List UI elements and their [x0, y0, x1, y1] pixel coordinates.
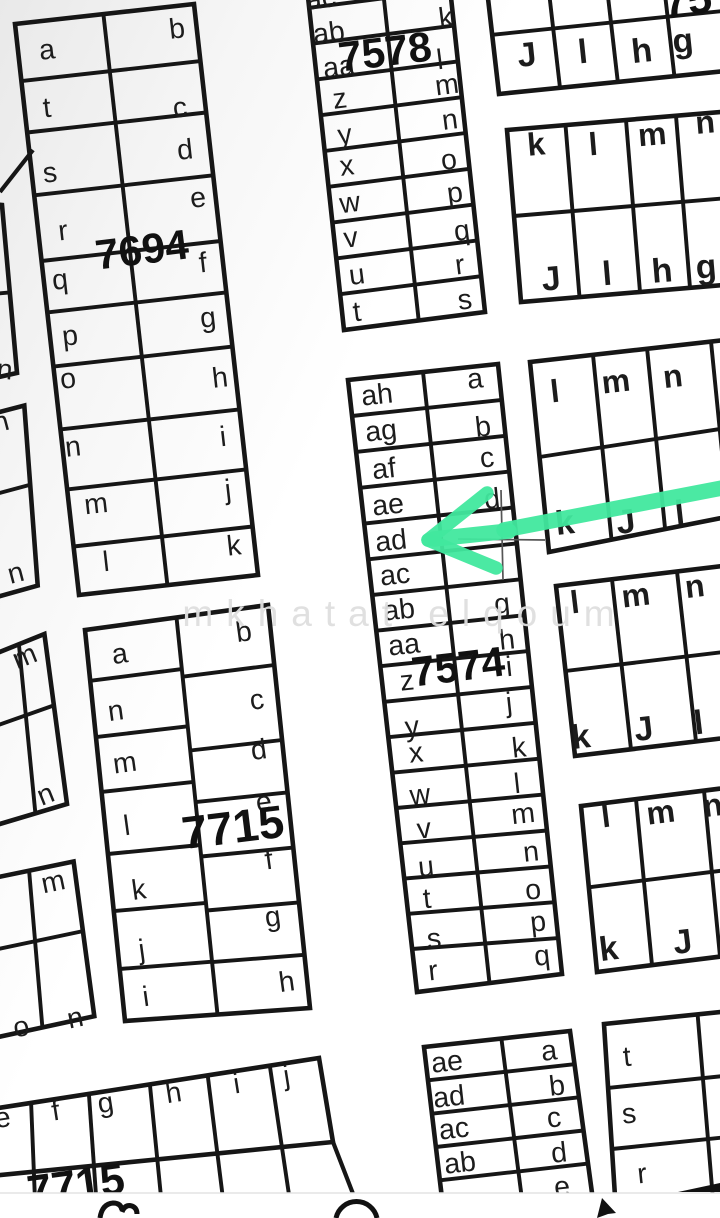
svg-text:h: h: [630, 31, 655, 71]
svg-text:h: h: [650, 251, 674, 291]
svg-text:ah: ah: [360, 377, 395, 412]
svg-text:w: w: [407, 778, 432, 812]
svg-text:ab: ab: [443, 1145, 478, 1180]
svg-text:m: m: [111, 746, 139, 781]
svg-text:m: m: [82, 487, 109, 521]
svg-text:ae: ae: [371, 487, 406, 522]
svg-text:m: m: [644, 792, 677, 831]
svg-text:n: n: [521, 835, 540, 869]
svg-text:p: p: [528, 905, 547, 939]
svg-text:o: o: [523, 873, 542, 907]
svg-text:n: n: [701, 786, 720, 824]
svg-text:ac: ac: [378, 558, 411, 593]
svg-text:b: b: [473, 410, 492, 444]
svg-text:m: m: [433, 68, 461, 103]
svg-text:q: q: [532, 939, 551, 973]
svg-text:ag: ag: [364, 413, 399, 448]
svg-text:af: af: [371, 452, 398, 486]
svg-text:k: k: [526, 125, 547, 162]
svg-text:J: J: [515, 35, 538, 75]
svg-text:mkhatat elqoum: mkhatat elqoum: [182, 593, 627, 634]
svg-text:n: n: [661, 357, 684, 395]
svg-text:m: m: [636, 115, 667, 153]
svg-text:n: n: [694, 103, 716, 141]
svg-text:g: g: [694, 247, 718, 287]
svg-text:ae: ae: [430, 1044, 465, 1079]
svg-text:u: u: [416, 850, 435, 884]
svg-text:m: m: [600, 362, 632, 401]
svg-text:J: J: [540, 259, 562, 298]
svg-text:ad: ad: [374, 523, 409, 558]
svg-text:w: w: [337, 186, 363, 221]
svg-text:ac: ac: [437, 1111, 470, 1146]
svg-text:ad: ad: [432, 1079, 467, 1114]
svg-text:m: m: [510, 797, 537, 831]
